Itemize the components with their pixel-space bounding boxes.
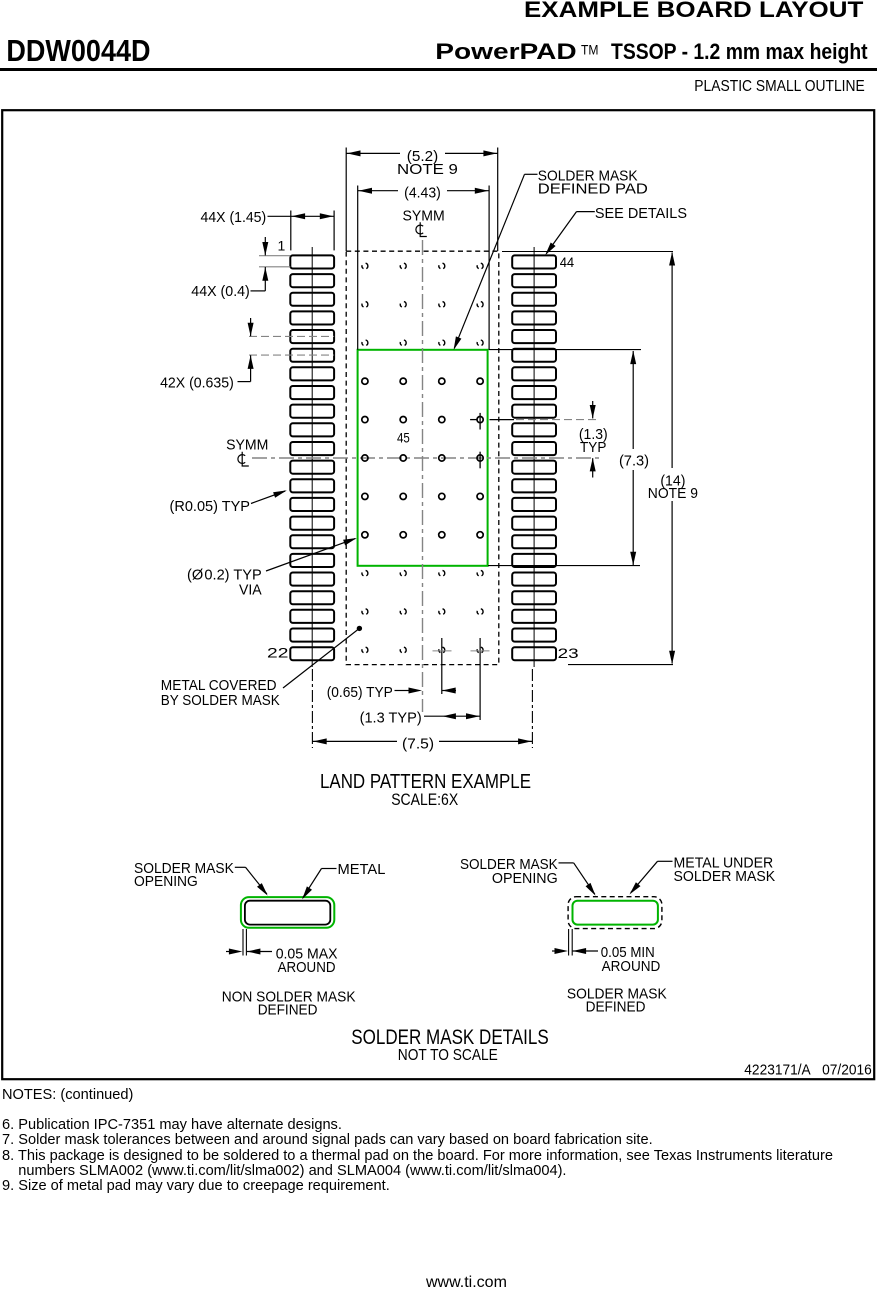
svg-text:EXAMPLE BOARD LAYOUT: EXAMPLE BOARD LAYOUT bbox=[524, 0, 864, 22]
svg-text:DEFINED: DEFINED bbox=[258, 1002, 318, 1019]
svg-text:NOTE 9: NOTE 9 bbox=[648, 485, 698, 502]
svg-text:SOLDER MASK: SOLDER MASK bbox=[674, 868, 776, 885]
svg-text:OPENING: OPENING bbox=[134, 873, 198, 890]
svg-text:VIA: VIA bbox=[239, 581, 262, 598]
svg-text:SOLDER MASK DETAILS: SOLDER MASK DETAILS bbox=[351, 1026, 549, 1049]
svg-text:PowerPAD: PowerPAD bbox=[435, 39, 576, 64]
svg-text:(7.5): (7.5) bbox=[402, 736, 434, 753]
svg-text:44X (0.4): 44X (0.4) bbox=[191, 283, 250, 300]
svg-text:(4.43): (4.43) bbox=[404, 185, 441, 202]
svg-text:SCALE:6X: SCALE:6X bbox=[391, 790, 458, 809]
svg-text:44: 44 bbox=[560, 254, 575, 270]
svg-text:45: 45 bbox=[397, 430, 410, 446]
svg-text:(R0.05) TYP: (R0.05) TYP bbox=[170, 498, 251, 515]
svg-text:SYMM: SYMM bbox=[226, 436, 268, 453]
svg-text:AROUND: AROUND bbox=[602, 958, 661, 975]
svg-text:42X (0.635): 42X (0.635) bbox=[160, 374, 234, 391]
svg-text:DEFINED PAD: DEFINED PAD bbox=[538, 181, 648, 198]
svg-text:DEFINED: DEFINED bbox=[586, 999, 646, 1016]
svg-text:TM: TM bbox=[581, 42, 599, 57]
svg-text:PLASTIC SMALL OUTLINE: PLASTIC SMALL OUTLINE bbox=[694, 78, 865, 95]
svg-text:NOT TO SCALE: NOT TO SCALE bbox=[398, 1047, 498, 1064]
svg-text:AROUND: AROUND bbox=[278, 959, 336, 976]
svg-text:OPENING: OPENING bbox=[492, 870, 558, 887]
svg-text:TSSOP - 1.2 mm max height: TSSOP - 1.2 mm max height bbox=[611, 39, 868, 64]
svg-text:SYMM: SYMM bbox=[403, 208, 445, 225]
svg-text:DDW0044D: DDW0044D bbox=[6, 34, 150, 68]
svg-text:(7.3): (7.3) bbox=[619, 452, 649, 469]
svg-text:4223171/A 07/2016: 4223171/A 07/2016 bbox=[744, 1063, 872, 1079]
svg-text:(1.3 TYP): (1.3 TYP) bbox=[360, 709, 422, 726]
svg-text:TYP: TYP bbox=[580, 439, 606, 456]
svg-text:22: 22 bbox=[267, 645, 289, 661]
svg-text:1: 1 bbox=[278, 238, 286, 254]
svg-text:(0.65) TYP: (0.65) TYP bbox=[327, 684, 393, 701]
svg-text:SEE DETAILS: SEE DETAILS bbox=[595, 205, 687, 222]
svg-text:BY SOLDER MASK: BY SOLDER MASK bbox=[161, 692, 280, 709]
svg-text:23: 23 bbox=[558, 645, 579, 661]
svg-text:METAL: METAL bbox=[338, 861, 386, 878]
svg-text:44X (1.45): 44X (1.45) bbox=[201, 209, 267, 226]
svg-text:NOTE 9: NOTE 9 bbox=[397, 161, 458, 178]
